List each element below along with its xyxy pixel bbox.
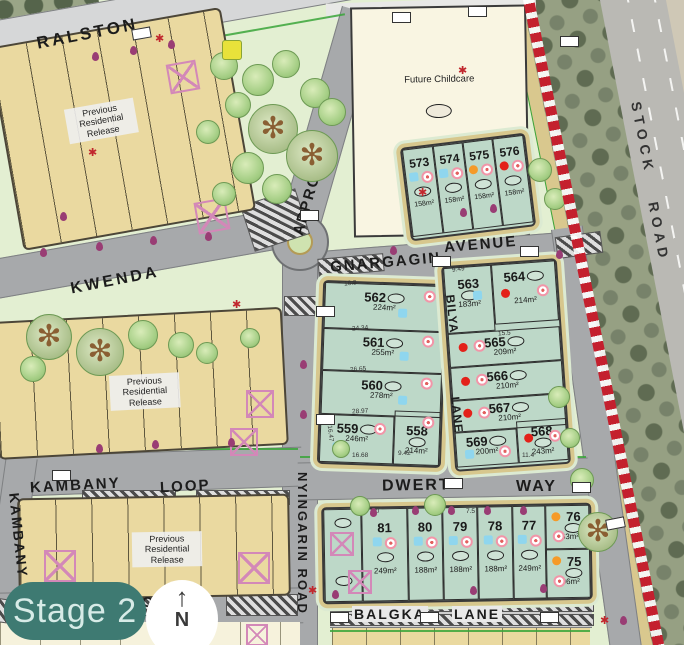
boundary-line (330, 630, 590, 632)
shrub-icon (390, 246, 397, 255)
shrub-icon (520, 506, 527, 515)
crossed-box-icon (238, 552, 270, 584)
shrub-icon (152, 440, 159, 449)
lot-badge-icon (507, 335, 525, 346)
tree-icon (548, 386, 570, 408)
lot-562[interactable]: 562 224m² (324, 282, 446, 332)
survey-oval-icon (426, 104, 452, 118)
lot-badge-icon (417, 551, 434, 561)
shrub-icon (205, 232, 212, 241)
lot-558[interactable]: 558 214m² (393, 410, 441, 466)
tree-icon (26, 314, 72, 360)
lot-badge-icon (487, 550, 504, 560)
tree-icon (232, 152, 264, 184)
lot-badge-icon (510, 369, 528, 380)
tree-icon (240, 328, 260, 348)
chainage-marker (316, 306, 335, 317)
shrub-icon (412, 506, 419, 515)
tree-icon (332, 440, 350, 458)
marker-star-icon: ✱ (600, 616, 609, 627)
shrub-icon (448, 506, 455, 515)
lot-78[interactable]: 78 188m² (477, 506, 514, 600)
dimension-label: 11.4 (522, 452, 534, 459)
shrub-icon (150, 236, 157, 245)
dimension-label: 15.5 (498, 330, 511, 338)
lot-badge-icon (512, 401, 530, 412)
crossed-box-icon (330, 532, 354, 556)
tree-icon (225, 92, 251, 118)
tree-icon (528, 158, 552, 182)
shrub-icon (300, 360, 307, 369)
chainage-marker (330, 612, 349, 623)
lot-badge-icon (444, 182, 462, 194)
crossed-box-icon (166, 60, 201, 95)
lot-badge-icon (452, 551, 469, 561)
tree-icon (168, 332, 194, 358)
lot-564[interactable]: 564 214m² (491, 260, 559, 324)
shrub-icon (484, 506, 491, 515)
lot-561[interactable]: 561 255m² (322, 328, 443, 374)
marker-star-icon: ✱ (458, 66, 467, 77)
lot-badge-icon (504, 174, 522, 186)
crossed-box-icon (246, 390, 274, 418)
chainage-marker (52, 470, 71, 481)
dimension-label: 24.34 (352, 324, 369, 332)
lot-badge-icon (376, 552, 393, 562)
road-label-dwert: DWERT (382, 476, 451, 495)
lot-badge-icon (385, 381, 402, 392)
marker-star-icon: ✱ (232, 300, 241, 311)
shrub-icon (228, 438, 235, 447)
tree-icon (286, 130, 338, 182)
shrub-icon (300, 410, 307, 419)
shrub-icon (540, 584, 547, 593)
crossed-box-icon (44, 550, 76, 582)
previous-release-label: Previous Residential Release (109, 372, 181, 411)
previous-release-label: Previous Residential Release (132, 531, 203, 567)
shrub-icon (96, 242, 103, 251)
previous-release-label: Previous Residential Release (64, 98, 139, 145)
shrub-icon (620, 616, 627, 625)
tree-icon (212, 182, 236, 206)
tree-icon (76, 328, 124, 376)
marker-star-icon: ✱ (155, 34, 164, 45)
marker-star-icon: ✱ (308, 586, 317, 597)
lot-75[interactable]: 75 206m² (546, 549, 591, 599)
shrub-icon (460, 208, 467, 217)
crossed-box-icon (246, 624, 268, 645)
dimension-label: 28.97 (352, 408, 369, 416)
chainage-marker (572, 482, 591, 493)
road-label-balgka: BALGKA (352, 606, 428, 622)
chainage-marker (300, 210, 319, 221)
tree-icon (262, 174, 292, 204)
north-label: N (175, 610, 189, 630)
crossed-box-icon (348, 570, 372, 594)
dimension-label: 16.3 (344, 279, 357, 287)
tree-icon (222, 40, 242, 60)
lot-badge-icon (521, 550, 538, 560)
shrub-icon (130, 46, 137, 55)
tree-icon (196, 342, 218, 364)
shrub-icon (556, 250, 563, 259)
future-childcare-label: Future Childcare (393, 73, 485, 86)
dimension-label: 9.42 (398, 450, 411, 457)
chainage-marker (560, 36, 579, 47)
north-arrow-icon: ↑ (176, 584, 189, 610)
chainage-marker (432, 256, 451, 267)
shrub-icon (470, 586, 477, 595)
dimension-label: 7.5 (466, 508, 475, 515)
shrub-icon (332, 590, 339, 599)
stage-badge: Stage 2 (4, 582, 146, 640)
shrub-icon (60, 212, 67, 221)
chainage-marker (420, 612, 439, 623)
shrub-icon (96, 444, 103, 453)
road-hatch (226, 594, 298, 616)
road-label-way: WAY (516, 478, 557, 496)
shrub-icon (168, 40, 175, 49)
tree-icon (128, 320, 158, 350)
chainage-marker (444, 478, 463, 489)
marker-star-icon: ✱ (88, 148, 97, 159)
road-hatch (284, 296, 318, 316)
subdivision-plan: STOCK ROAD Previous Residential Release … (0, 0, 684, 645)
shrub-icon (490, 204, 497, 213)
shrub-icon (92, 52, 99, 61)
lot-badge-icon (474, 178, 492, 190)
lot-badge-icon (527, 270, 545, 281)
lot-badge-icon (386, 338, 403, 349)
lot-80[interactable]: 80 188m² (407, 507, 444, 601)
dimension-label: 26.65 (350, 365, 367, 373)
chainage-marker (468, 6, 487, 17)
tree-icon (560, 428, 580, 448)
lot-badge-icon (388, 293, 405, 304)
marker-star-icon: ✱ (418, 188, 427, 199)
tree-icon (318, 98, 346, 126)
chainage-marker (316, 414, 335, 425)
chainage-marker (392, 12, 411, 23)
lot-badge-icon (334, 518, 351, 528)
lot-569[interactable]: 569 200m² (455, 428, 519, 467)
tree-icon (196, 120, 220, 144)
chainage-marker (540, 612, 559, 623)
shrub-icon (370, 508, 377, 517)
tree-icon (424, 494, 446, 516)
lot-badge-icon (489, 435, 507, 446)
tree-icon (20, 356, 46, 382)
tree-icon (242, 64, 274, 96)
lot-block-east: 563 183m² 564 214m² 565 209m² 566 210m² … (441, 258, 571, 472)
shrub-icon (40, 248, 47, 257)
tree-icon (272, 50, 300, 78)
road-label-balgka-lane: LANE (452, 606, 502, 622)
dimension-label: 16.68 (352, 452, 368, 459)
tree-icon (350, 496, 370, 516)
chainage-marker (520, 246, 539, 257)
road-label-loop: LOOP (160, 477, 211, 497)
